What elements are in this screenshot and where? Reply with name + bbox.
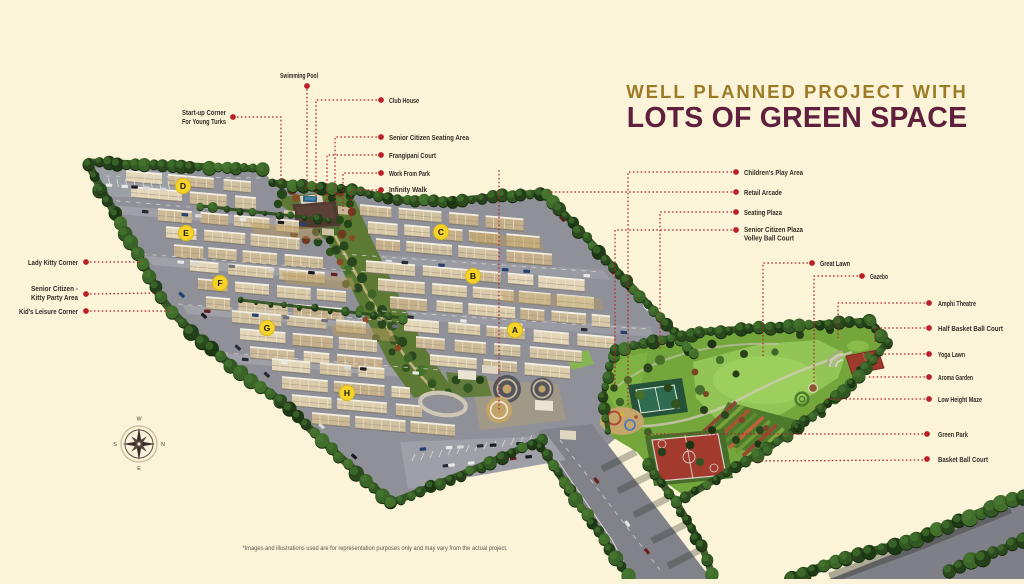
svg-text:Green Park: Green Park xyxy=(938,430,969,439)
svg-text:Work From Park: Work From Park xyxy=(389,169,431,178)
svg-text:Senior Citizen -: Senior Citizen - xyxy=(31,284,78,293)
svg-text:WELL PLANNED PROJECT WITH: WELL PLANNED PROJECT WITH xyxy=(626,81,968,102)
svg-text:Infinity Walk: Infinity Walk xyxy=(389,185,428,194)
svg-text:LOTS OF GREEN SPACE: LOTS OF GREEN SPACE xyxy=(627,102,968,134)
svg-text:N: N xyxy=(161,442,165,448)
svg-text:H: H xyxy=(344,388,350,398)
svg-text:G: G xyxy=(264,323,271,333)
svg-text:F: F xyxy=(217,278,222,288)
svg-text:Senior Citizen Seating Area: Senior Citizen Seating Area xyxy=(389,133,470,142)
svg-text:Kid's Leisure Corner: Kid's Leisure Corner xyxy=(19,307,78,316)
svg-text:Frangipani Court: Frangipani Court xyxy=(389,151,436,160)
svg-text:Great Lawn: Great Lawn xyxy=(820,259,850,268)
svg-text:Basket Ball Court: Basket Ball Court xyxy=(938,455,988,464)
svg-text:A: A xyxy=(512,325,518,335)
svg-text:For Young Turks: For Young Turks xyxy=(182,117,226,126)
svg-text:Club House: Club House xyxy=(389,96,419,105)
svg-text:*Images and illustrations used: *Images and illustrations used are for r… xyxy=(243,545,508,552)
svg-text:Children's Play Area: Children's Play Area xyxy=(744,168,804,177)
svg-text:Half Basket Ball Court: Half Basket Ball Court xyxy=(938,324,1003,333)
svg-text:Gazebo: Gazebo xyxy=(870,272,888,281)
svg-text:D: D xyxy=(180,181,186,191)
svg-text:E: E xyxy=(183,228,189,238)
svg-text:Amphi Theatre: Amphi Theatre xyxy=(938,299,976,308)
svg-text:Swimming Pool: Swimming Pool xyxy=(280,71,318,80)
svg-text:Lady Kitty Corner: Lady Kitty Corner xyxy=(28,258,78,267)
svg-text:Retail Arcade: Retail Arcade xyxy=(744,188,782,197)
svg-text:Volley Ball Court: Volley Ball Court xyxy=(744,234,794,243)
svg-text:Yoga Lawn: Yoga Lawn xyxy=(938,350,965,359)
svg-text:Low Height Maze: Low Height Maze xyxy=(938,395,982,404)
svg-text:C: C xyxy=(438,227,444,237)
svg-text:Aroma Garden: Aroma Garden xyxy=(938,373,973,382)
svg-text:Seating Plaza: Seating Plaza xyxy=(744,208,783,217)
svg-text:S: S xyxy=(113,442,117,448)
svg-text:B: B xyxy=(470,271,476,281)
svg-text:E: E xyxy=(137,466,141,472)
svg-text:Kitty Party Area: Kitty Party Area xyxy=(31,293,79,302)
svg-text:Start-up Corner: Start-up Corner xyxy=(182,108,226,117)
